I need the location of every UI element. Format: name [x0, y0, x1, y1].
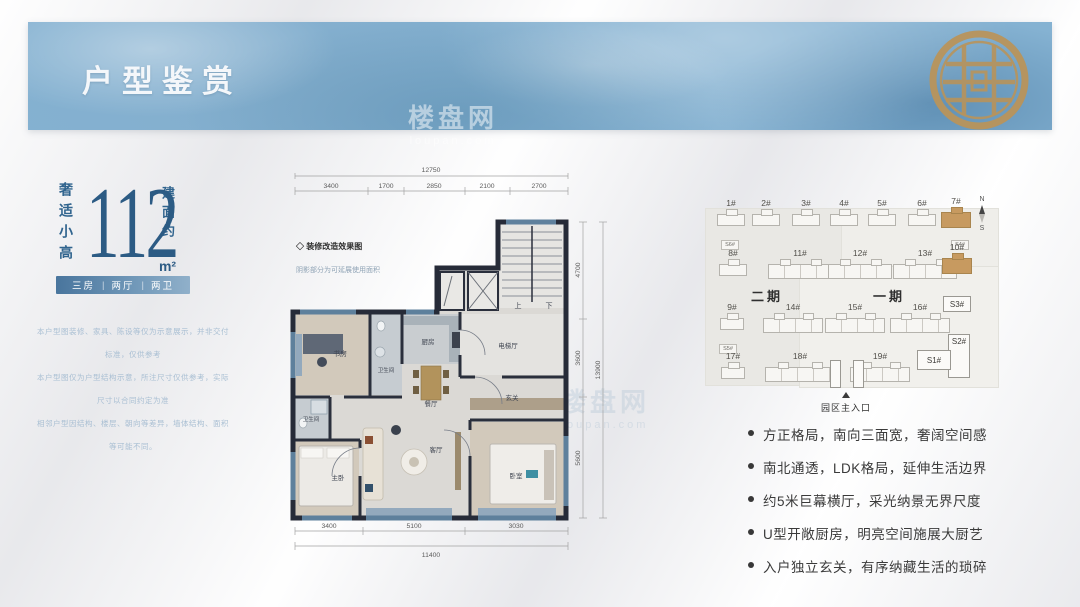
tagline-vertical: 奢适小高	[56, 182, 76, 268]
disclaimer-line: 相邻户型因结构、楼层、朝向等差异，墙体结构、面积等可能不同。	[36, 412, 230, 458]
building-15: 15#	[825, 318, 885, 333]
feature-item: 约5米巨幕横厅，采光纳景无界尺度	[748, 490, 1048, 510]
dim-right-seg: 4700	[575, 262, 582, 277]
disclaimer-line: 本户型图仅为户型结构示意，所注尺寸仅供参考，实际尺寸以合同约定为准	[36, 366, 230, 412]
entrance-gate-left	[830, 360, 841, 388]
tag-divider: |	[142, 280, 144, 291]
building-6: 6#	[908, 214, 936, 226]
area-headline: 奢适小高 112 建面约 m²	[56, 182, 177, 274]
elevator-hall-label: 电梯厅	[498, 341, 518, 350]
window-bay	[478, 508, 556, 516]
stair-up-label: 上	[515, 301, 522, 310]
building-3: 3#	[792, 214, 820, 226]
dim-top-total: 12750	[422, 167, 441, 174]
building-16: 16#	[890, 318, 950, 333]
building-8: 8#	[719, 264, 747, 276]
tag-divider: |	[102, 280, 104, 291]
dim-top-seg: 1700	[378, 183, 393, 190]
building-4: 4#	[830, 214, 858, 226]
building-7-highlighted: 7#	[941, 212, 971, 228]
dim-top-seg: 2700	[531, 183, 546, 190]
shaded-area-note: 阴影部分为可延展使用面积	[296, 265, 380, 274]
feature-list: 方正格局，南向三面宽，奢阔空间感 南北通透，LDK格局，延伸生活边界 约5米巨幕…	[748, 424, 1048, 589]
master-bedroom-label: 主卧	[332, 473, 346, 482]
dim-top-seg: 2850	[426, 183, 441, 190]
feature-item: 入户独立玄关，有序纳藏生活的琐碎	[748, 556, 1048, 576]
bedroom-label: 卧室	[510, 471, 524, 480]
dim-top-seg: 3400	[323, 183, 338, 190]
dim-right-seg: 5600	[575, 450, 582, 465]
building-s3: S3#	[943, 296, 971, 312]
phase2-label: 二期	[751, 286, 783, 305]
disclaimer-line: 本户型图装修、家具、陈设等仅为示意展示，并非交付标准，仅供参考	[36, 320, 230, 366]
bullet-icon	[748, 430, 754, 436]
banner: 户型鉴赏	[28, 22, 1052, 130]
area-number: 112	[86, 182, 152, 274]
feature-item: U型开敞厨房，明亮空间施展大厨艺	[748, 523, 1048, 543]
dim-right-total: 13900	[595, 360, 602, 379]
compass-icon: N S	[979, 196, 985, 232]
feature-item: 方正格局，南向三面宽，奢阔空间感	[748, 424, 1048, 444]
bullet-icon	[748, 463, 754, 469]
building-11: 11#	[768, 264, 832, 279]
entrance-arrow-icon	[842, 392, 850, 398]
building-9: 9#	[720, 318, 744, 330]
compass-needle-south	[979, 214, 985, 223]
foyer-label: 玄关	[506, 393, 520, 402]
phase1-label: 一期	[873, 286, 905, 305]
tag-halls: 两厅	[111, 278, 134, 292]
building-1: 1#	[717, 214, 745, 226]
kitchen-label: 厨房	[422, 337, 435, 346]
study-label: 书房	[333, 349, 347, 358]
bullet-icon	[748, 496, 754, 502]
stair-down-label: 下	[546, 302, 553, 310]
dining-label: 餐厅	[425, 399, 439, 408]
floorplan: 书房 卫生间 厨房 电梯厅 餐厅 玄关 卫生间 主卧 客厅 卧室 上 下 ◇ 装…	[283, 160, 633, 562]
building-10-highlighted: 10#	[942, 258, 972, 274]
watermark-domain: loupan.com	[410, 135, 497, 147]
entrance-gate-right	[853, 360, 864, 388]
compass-north: N	[979, 196, 984, 203]
dim-bottom-seg: 3030	[508, 523, 523, 530]
renovation-note: ◇ 装修改造效果图	[295, 241, 362, 251]
entrance-label: 园区主入口	[821, 401, 871, 414]
layout-tags-bar: 三房 | 两厅 | 两卫	[56, 276, 190, 294]
building-17: 17#	[721, 367, 745, 379]
building-5: 5#	[868, 214, 896, 226]
bullet-icon	[748, 562, 754, 568]
window-bay	[366, 508, 452, 516]
tag-rooms: 三房	[72, 278, 95, 292]
bullet-icon	[748, 529, 754, 535]
compass-south: S	[980, 225, 985, 232]
bath1-label: 卫生间	[378, 366, 395, 374]
tag-baths: 两卫	[151, 278, 174, 292]
building-s1: S1#	[917, 350, 951, 370]
building-18: 18#	[765, 367, 835, 382]
compass-needle-north	[979, 205, 985, 214]
building-2: 2#	[752, 214, 780, 226]
dim-bottom-seg: 5100	[406, 523, 421, 530]
building-14: 14#	[763, 318, 823, 333]
dim-bottom-seg: 3400	[321, 523, 336, 530]
dim-top-seg: 2100	[479, 183, 494, 190]
dim-right-seg: 3600	[575, 350, 582, 365]
window-lattice-icon	[924, 24, 1034, 132]
dim-bottom-total: 11400	[422, 552, 441, 559]
bath1-floor	[370, 314, 402, 395]
feature-item: 南北通透，LDK格局，延伸生活边界	[748, 457, 1048, 477]
chinese-window-emblem	[924, 24, 1034, 137]
living-label: 客厅	[430, 445, 444, 454]
disclaimer: 本户型图装修、家具、陈设等仅为示意展示，并非交付标准，仅供参考 本户型图仅为户型…	[36, 320, 230, 458]
window-bay	[296, 334, 302, 376]
page-title: 户型鉴赏	[82, 56, 242, 101]
bath2-label: 卫生间	[303, 415, 320, 423]
building-12: 12#	[828, 264, 892, 279]
siteplan: 1# 2# 3# 4# 5# 6# 7# S6# S4# 8# 11# 12# …	[703, 192, 999, 422]
building-s2: S2#	[948, 334, 970, 378]
